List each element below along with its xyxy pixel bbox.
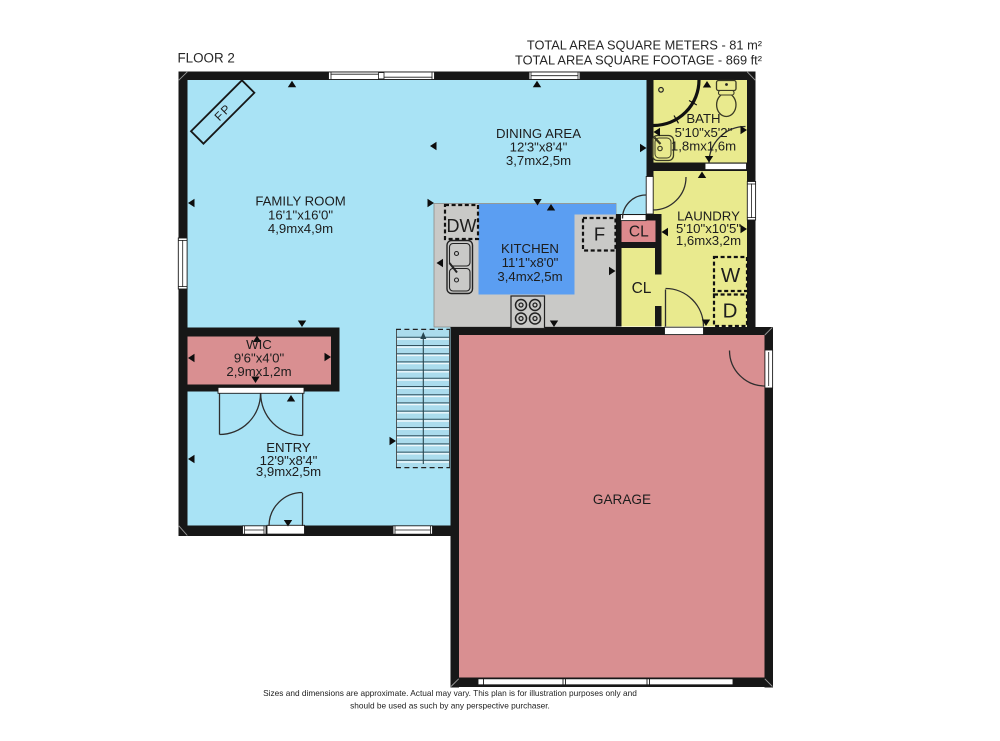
svg-text:CL: CL [632, 280, 652, 297]
svg-text:1,6mx3,2m: 1,6mx3,2m [676, 233, 741, 248]
svg-text:FLOOR 2: FLOOR 2 [178, 51, 235, 66]
svg-text:1,8mx1,6m: 1,8mx1,6m [671, 139, 736, 154]
svg-text:3,7mx2,5m: 3,7mx2,5m [506, 153, 571, 168]
svg-text:3,4mx2,5m: 3,4mx2,5m [497, 269, 562, 284]
svg-text:2,9mx1,2m: 2,9mx1,2m [226, 364, 291, 379]
svg-text:TOTAL AREA SQUARE FOOTAGE - 86: TOTAL AREA SQUARE FOOTAGE - 869 ft² [515, 53, 763, 68]
svg-text:CL: CL [629, 223, 649, 240]
svg-text:D: D [723, 300, 738, 323]
svg-text:4,9mx4,9m: 4,9mx4,9m [268, 221, 333, 236]
svg-text:DINING AREA: DINING AREA [496, 126, 581, 141]
svg-text:11'1"x8'0": 11'1"x8'0" [502, 255, 559, 270]
svg-text:Sizes and dimensions are appro: Sizes and dimensions are approximate. Ac… [263, 688, 637, 698]
svg-text:DW: DW [447, 216, 477, 236]
svg-text:16'1"x16'0": 16'1"x16'0" [268, 207, 333, 222]
svg-text:FAMILY ROOM: FAMILY ROOM [255, 194, 345, 209]
svg-text:should be used as such by any: should be used as such by any perspectiv… [350, 700, 550, 710]
svg-text:GARAGE: GARAGE [593, 492, 651, 507]
svg-text:F: F [594, 223, 605, 244]
svg-text:TOTAL AREA SQUARE METERS - 81: TOTAL AREA SQUARE METERS - 81 m² [527, 38, 763, 53]
svg-text:BATH: BATH [686, 111, 720, 126]
svg-text:3,9mx2,5m: 3,9mx2,5m [256, 464, 321, 479]
svg-text:KITCHEN: KITCHEN [501, 241, 559, 256]
svg-text:W: W [721, 264, 741, 287]
